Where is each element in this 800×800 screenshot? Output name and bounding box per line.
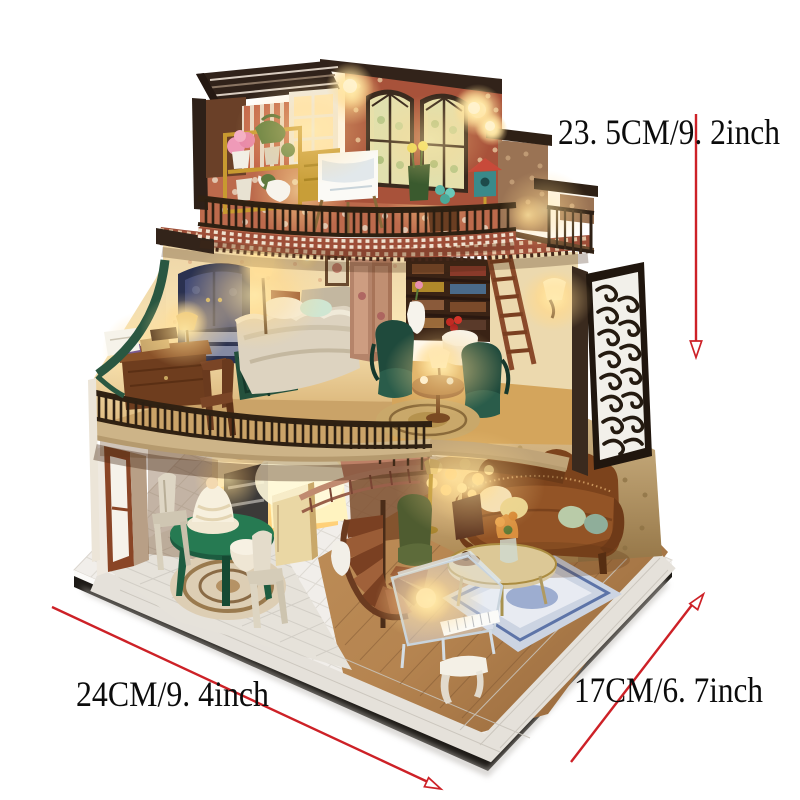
svg-text:23. 5CM/9. 2inch: 23. 5CM/9. 2inch — [558, 112, 780, 152]
svg-text:17CM/6. 7inch: 17CM/6. 7inch — [574, 670, 763, 710]
svg-text:24CM/9. 4inch: 24CM/9. 4inch — [76, 674, 269, 714]
